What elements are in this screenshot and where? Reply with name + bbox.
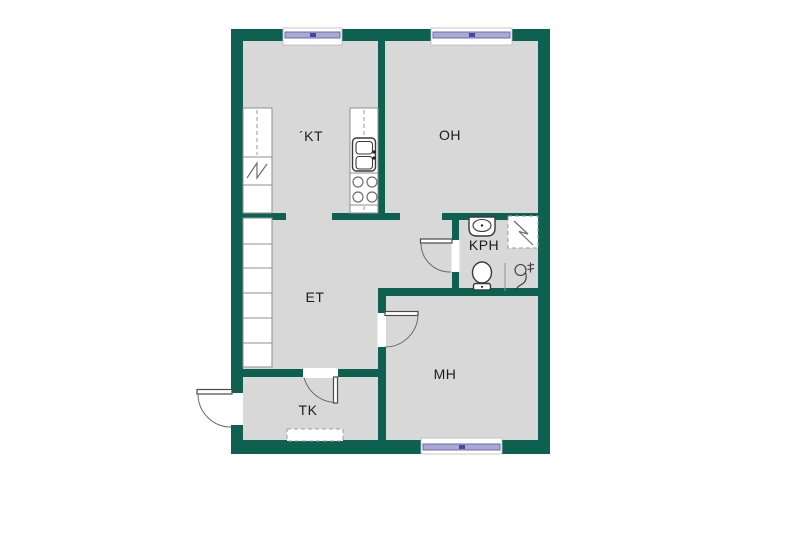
wall-kph-west-lower <box>452 272 459 289</box>
wall-kt-et-stub-b <box>332 213 400 220</box>
wall-mh-top <box>378 288 538 296</box>
washbasin-icon <box>469 217 495 236</box>
wall-kph-west-upper <box>452 220 459 240</box>
floor-plan-drawing <box>0 0 800 533</box>
reserved-dashed-box <box>287 429 343 441</box>
entrance-opening <box>231 393 243 425</box>
floor-plan-page: ´KT OH ET KPH MH TK <box>0 0 800 533</box>
window-oh <box>431 28 512 45</box>
toilet-icon <box>473 262 492 290</box>
sink-icon <box>353 138 376 171</box>
wall-kt-oh <box>378 41 385 220</box>
wall-tk-top-left <box>243 369 303 377</box>
window-mh <box>421 438 502 454</box>
kph-opening <box>452 240 460 272</box>
room-label-kt: ´KT <box>299 128 323 144</box>
room-label-mh: MH <box>434 366 457 382</box>
wall-right <box>538 29 550 454</box>
window-kt <box>283 28 342 45</box>
wall-left <box>231 29 243 454</box>
shower-reservation-icon <box>508 216 538 248</box>
kitchen-counter-left <box>243 108 272 213</box>
room-label-oh: OH <box>439 127 461 143</box>
room-label-et: ET <box>306 289 325 305</box>
room-label-tk: TK <box>299 402 318 418</box>
entrance-door <box>197 390 232 428</box>
room-label-kph: KPH <box>469 237 499 253</box>
mh-opening <box>378 313 387 347</box>
wall-tk-top-right <box>338 369 378 377</box>
wardrobe-row <box>243 218 272 367</box>
kitchen-counter-middle <box>350 108 378 213</box>
tk-opening <box>303 368 338 378</box>
